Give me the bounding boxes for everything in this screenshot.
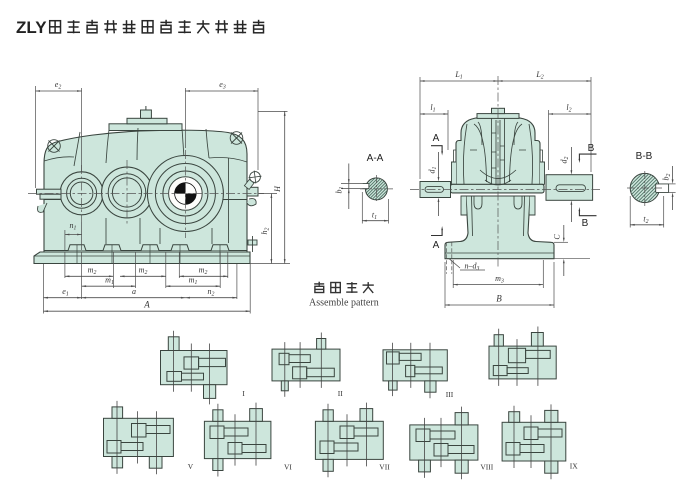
svg-text:A-A: A-A — [367, 153, 384, 164]
svg-text:V: V — [188, 462, 194, 471]
svg-text:A: A — [433, 240, 440, 251]
svg-text:B: B — [588, 143, 595, 154]
svg-text:II: II — [338, 389, 343, 398]
svg-text:A: A — [143, 300, 150, 310]
svg-text:VIII: VIII — [480, 463, 493, 472]
svg-text:ZLY: ZLY — [16, 18, 47, 37]
svg-text:VI: VI — [284, 463, 292, 472]
svg-text:Assemble pattern: Assemble pattern — [309, 298, 379, 309]
svg-text:C: C — [553, 234, 562, 240]
svg-text:B: B — [496, 294, 502, 304]
svg-text:B: B — [582, 218, 589, 229]
svg-text:B-B: B-B — [636, 151, 653, 162]
svg-text:a: a — [132, 287, 136, 296]
svg-text:A: A — [433, 133, 440, 144]
svg-text:VII: VII — [379, 463, 390, 472]
svg-text:III: III — [446, 390, 454, 399]
svg-text:IX: IX — [570, 462, 578, 471]
